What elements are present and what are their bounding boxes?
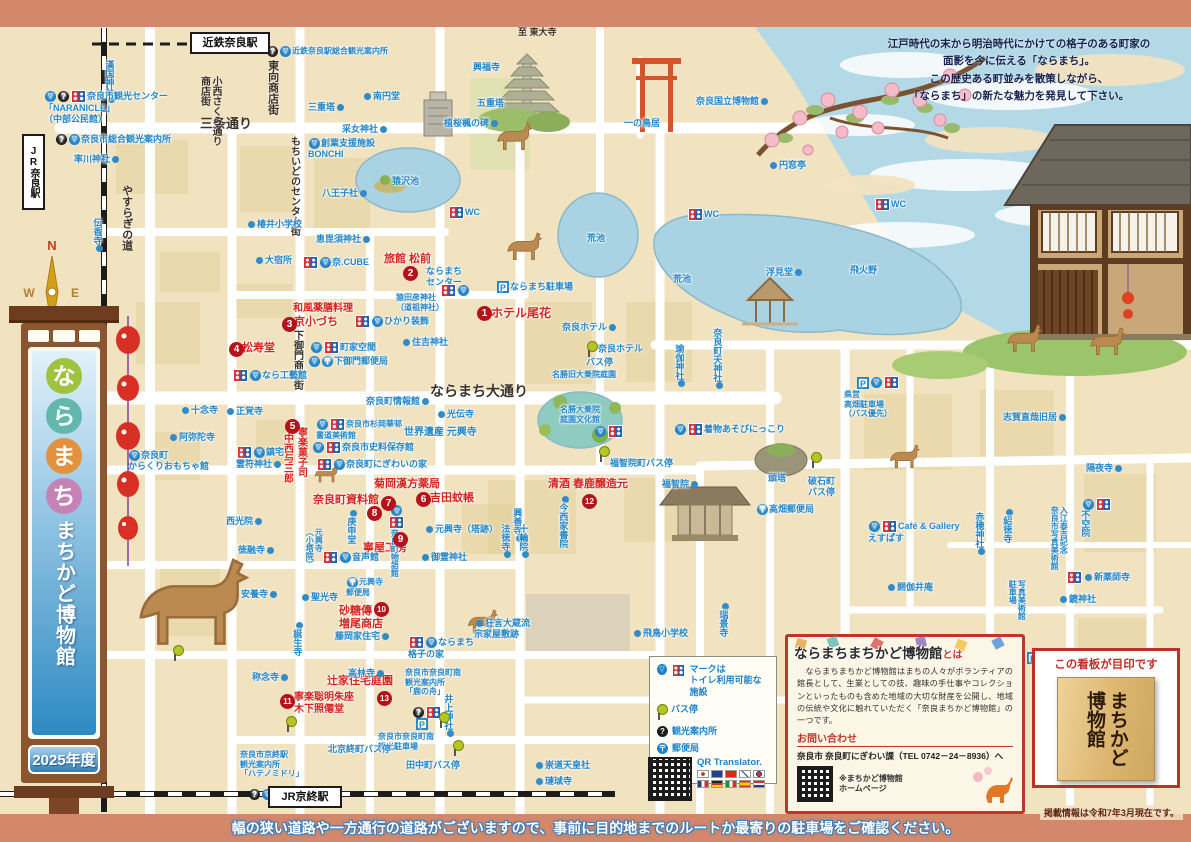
legend-toilet-text: マークは トイレ利用可能な施設 bbox=[689, 664, 770, 698]
title-circle-char: な bbox=[46, 358, 82, 394]
title-circle-char: ら bbox=[46, 398, 82, 434]
legend-busstop-text: バス停 bbox=[671, 704, 698, 715]
contact-info: 奈良市 奈良町にぎわい課（TEL 0742－24－8936）へ bbox=[788, 747, 1022, 762]
bus-stop-pin-icon bbox=[657, 704, 667, 720]
daijoin-garden-pond bbox=[538, 392, 622, 448]
title-circle-char: ま bbox=[46, 438, 82, 474]
autumn-deer-decoration bbox=[968, 765, 1014, 805]
sign-board: ならまち まちかど博物館 bbox=[28, 347, 100, 739]
restroom-icon bbox=[672, 664, 686, 677]
flag-icon bbox=[711, 770, 723, 778]
legend-info-text: 観光案内所 bbox=[672, 726, 717, 737]
contact-heading: お問い合わせ bbox=[797, 730, 1013, 747]
signboard-caption: この看板が目印です bbox=[1040, 656, 1172, 672]
homepage-caption: ※まちかど博物館 ホームページ bbox=[839, 774, 903, 795]
flag-icon bbox=[725, 780, 737, 788]
sign-base bbox=[14, 786, 114, 798]
araike-pond-west bbox=[558, 193, 638, 277]
postoffice-icon: 〒 bbox=[657, 743, 668, 754]
title-circle-char: ち bbox=[46, 478, 82, 514]
flag-icon bbox=[697, 780, 709, 788]
machikado-museum-title: まちかど博物館 bbox=[50, 520, 79, 667]
naramachi-title-circles: ならまち bbox=[46, 356, 82, 516]
sign-roof bbox=[9, 306, 119, 323]
publication-note: 掲載情報は令和7年3月現在です。 bbox=[1040, 805, 1183, 820]
kintetsu-nara-station-tab: 近鉄奈良駅 bbox=[190, 32, 270, 54]
qr-code bbox=[648, 757, 692, 801]
sign-panel: ならまち まちかど博物館 bbox=[32, 351, 96, 735]
flag-icon bbox=[711, 780, 723, 788]
about-museum-box: ならまちまちかど博物館とは ならまちまちかど博物館はまちの人々がボランティアの館… bbox=[785, 634, 1025, 814]
jr-kyobate-station-tab: JR京終駅 bbox=[268, 786, 342, 808]
legend-post-text: 郵便局 bbox=[672, 743, 699, 754]
sign-body: ならまち まちかど博物館 2025年度 bbox=[21, 323, 107, 783]
tourist-info-icon: ? bbox=[657, 726, 668, 737]
flag-icon bbox=[739, 780, 751, 788]
intro-note: 江戸時代の末から明治時代にかけての格子のある町家の 面影を今に伝える「ならまち」… bbox=[846, 36, 1191, 105]
city-block-gray bbox=[526, 594, 630, 652]
homepage-qr-code bbox=[797, 766, 833, 802]
flag-icon bbox=[697, 770, 709, 778]
wooden-signboard: まちかど 博物館 bbox=[1057, 677, 1155, 781]
flag-icon bbox=[725, 770, 737, 778]
flag-icon bbox=[753, 770, 765, 778]
top-border-bar bbox=[0, 0, 1191, 27]
signboard-sample-box: この看板が目印です まちかど 博物館 bbox=[1032, 648, 1180, 788]
qr-translator-label: QR Translator. bbox=[697, 757, 765, 768]
sign-slats bbox=[28, 330, 100, 342]
compass-w: W bbox=[23, 286, 35, 300]
naramachi-sign: ならまち まちかど博物館 2025年度 bbox=[16, 306, 112, 818]
flag-icon bbox=[739, 770, 751, 778]
flag-icon bbox=[753, 780, 765, 788]
compass-n: N bbox=[47, 238, 56, 253]
road-warning-text: 幅の狭い道路や一方通行の道路がございますので、事前に目的地までのルートか最寄りの… bbox=[0, 818, 1191, 838]
facility-icon: ▽ bbox=[657, 664, 667, 675]
flag-icons bbox=[697, 770, 765, 788]
signboard-text: まちかど 博物館 bbox=[1083, 691, 1129, 767]
qr-translator-block: QR Translator. bbox=[648, 757, 790, 811]
migawari-monkey-charms bbox=[108, 316, 150, 576]
naramachi-map-page: N W E S 近鉄奈良駅 JR奈良駅 JR京終駅 江戸時代の末から明治時代にか… bbox=[0, 0, 1191, 842]
year-badge: 2025年度 bbox=[28, 745, 100, 774]
sarusawa-pond bbox=[356, 148, 460, 212]
about-box-body: ならまちまちかど博物館はまちの人々がボランティアの館長として、生業としての技、趣… bbox=[788, 664, 1022, 727]
compass-e: E bbox=[71, 286, 79, 300]
jr-nara-station-tab: JR奈良駅 bbox=[22, 134, 45, 210]
about-box-title: ならまちまちかど博物館とは bbox=[788, 637, 1022, 664]
bottom-warning-banner: 幅の狭い道路や一方通行の道路がございますので、事前に目的地までのルートか最寄りの… bbox=[0, 814, 1191, 842]
